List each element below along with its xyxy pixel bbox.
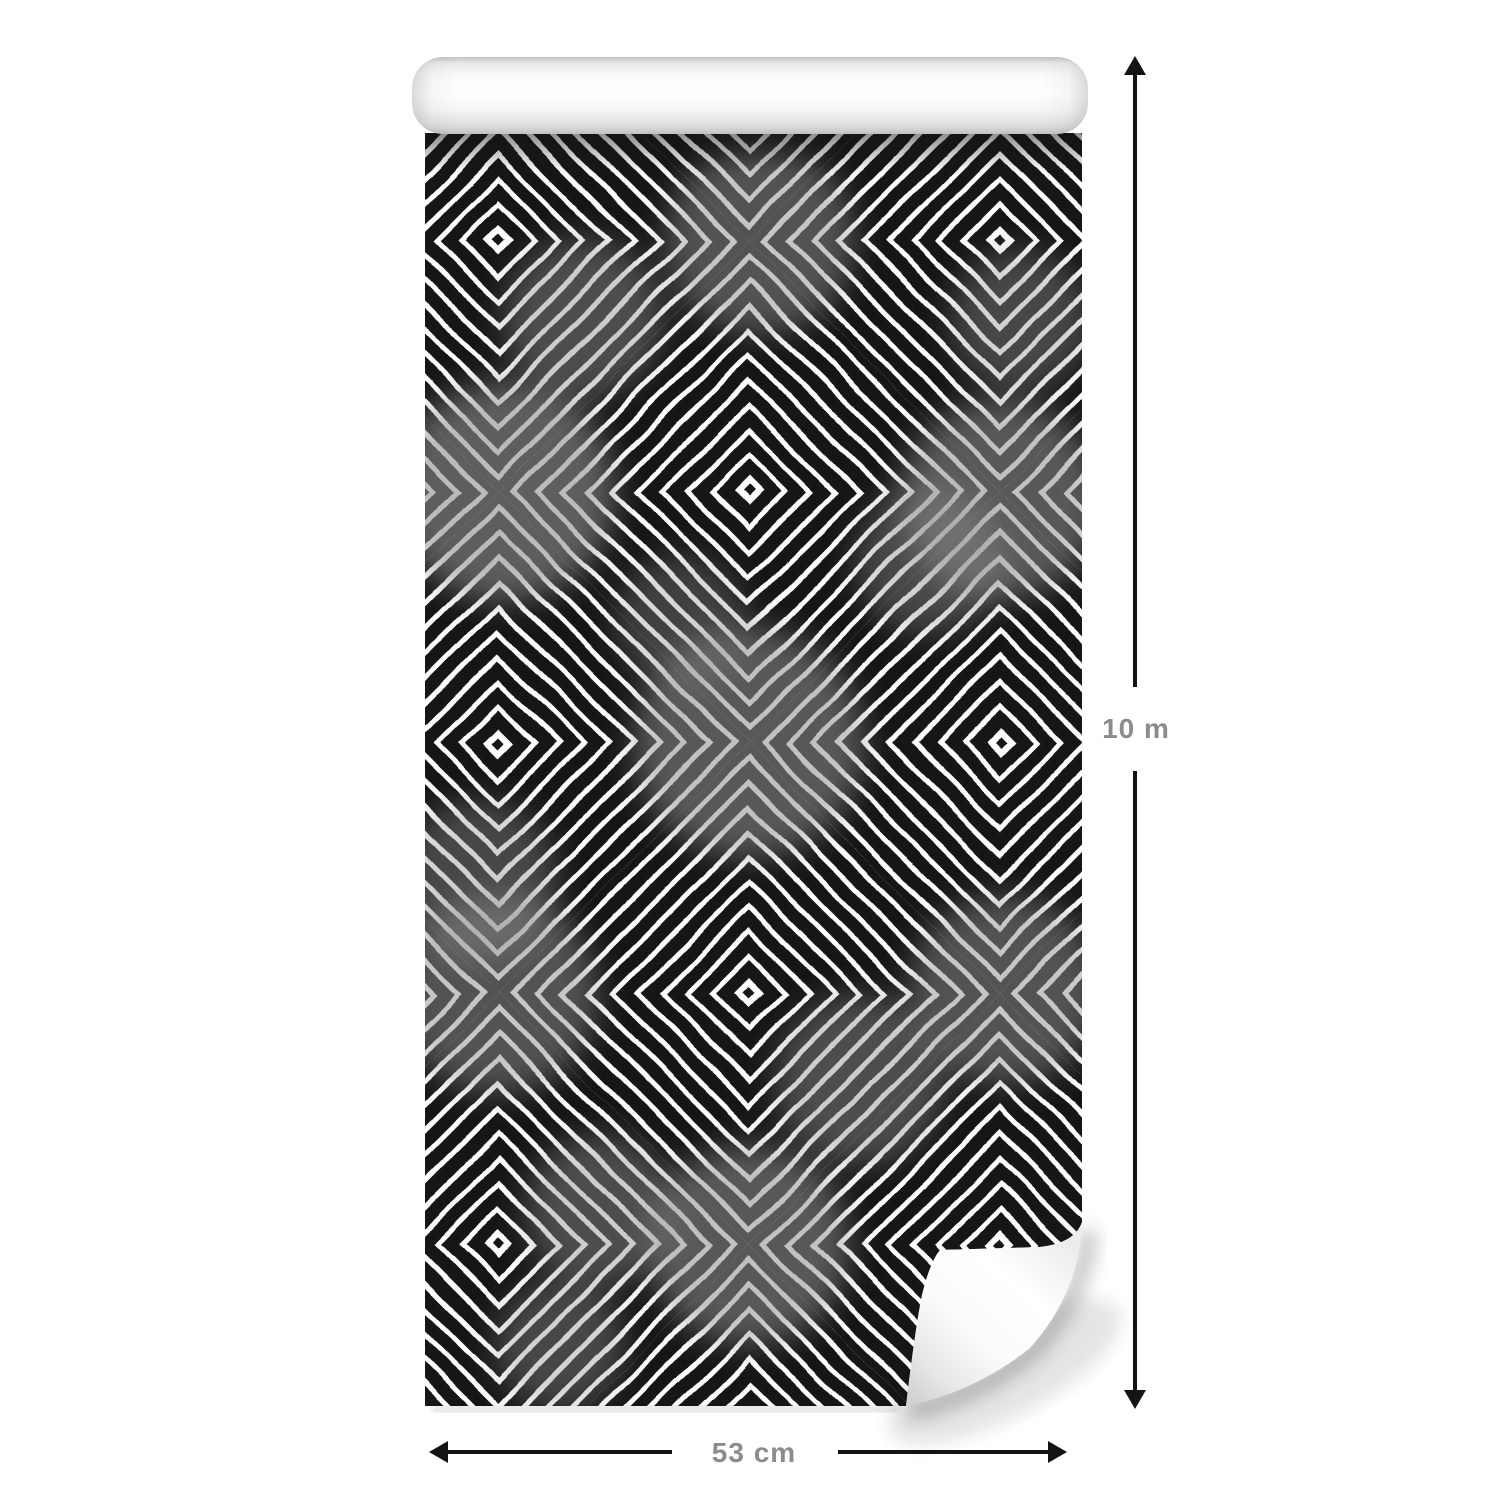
width-arrow-line-right (838, 1450, 1050, 1454)
width-arrow-line-left (447, 1450, 672, 1454)
width-dimension-label: 53 cm (706, 1437, 802, 1469)
bottom-edge-shadow (432, 1406, 898, 1412)
height-arrow-line-top (1133, 74, 1137, 687)
wallpaper-strip (395, 116, 1100, 1426)
height-arrow-head-up (1124, 56, 1146, 75)
roll-cylinder (412, 57, 1088, 134)
height-arrow-line-bottom (1133, 771, 1137, 1391)
product-dimension-diagram: 10 m 53 cm (0, 0, 1500, 1500)
height-arrow-head-down (1124, 1390, 1146, 1409)
width-arrow-head-right (1048, 1441, 1067, 1463)
height-dimension-label: 10 m (1096, 713, 1176, 745)
width-arrow-head-left (429, 1441, 448, 1463)
wallpaper-roll-graphic (0, 0, 1500, 1500)
roll-shadow (425, 131, 1082, 173)
